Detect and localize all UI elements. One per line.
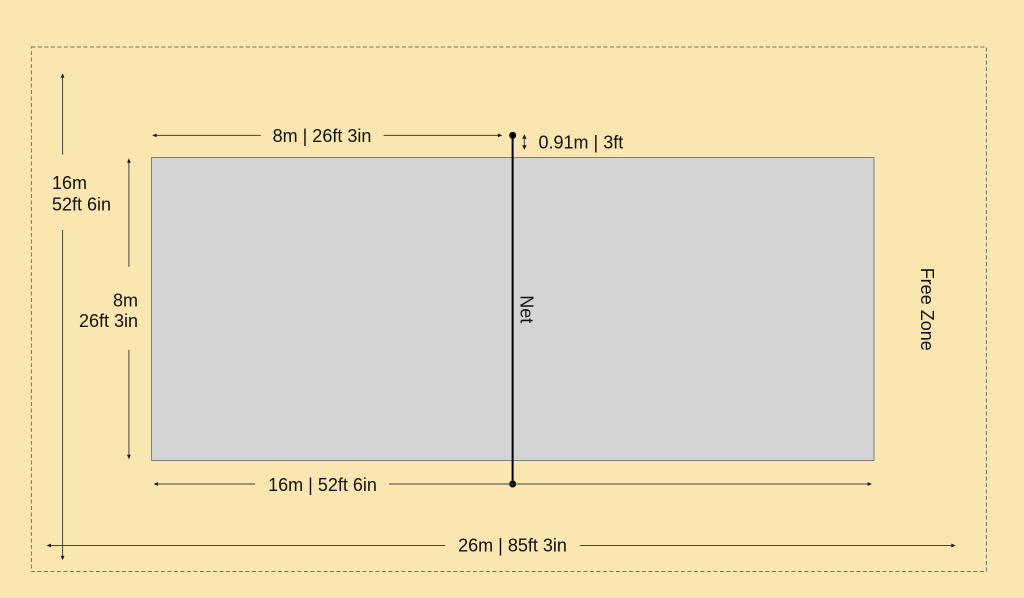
svg-text:8m | 26ft 3in: 8m | 26ft 3in [273, 126, 372, 146]
svg-text:8m: 8m [113, 290, 138, 310]
svg-text:52ft 6in: 52ft 6in [52, 194, 111, 214]
svg-text:Free Zone: Free Zone [917, 268, 937, 351]
svg-text:26m | 85ft 3in: 26m | 85ft 3in [458, 535, 567, 555]
svg-text:26ft 3in: 26ft 3in [79, 311, 138, 331]
svg-text:16m: 16m [52, 173, 87, 193]
svg-text:Net: Net [517, 295, 537, 323]
svg-text:16m | 52ft 6in: 16m | 52ft 6in [268, 475, 377, 495]
svg-text:0.91m | 3ft: 0.91m | 3ft [539, 133, 624, 153]
